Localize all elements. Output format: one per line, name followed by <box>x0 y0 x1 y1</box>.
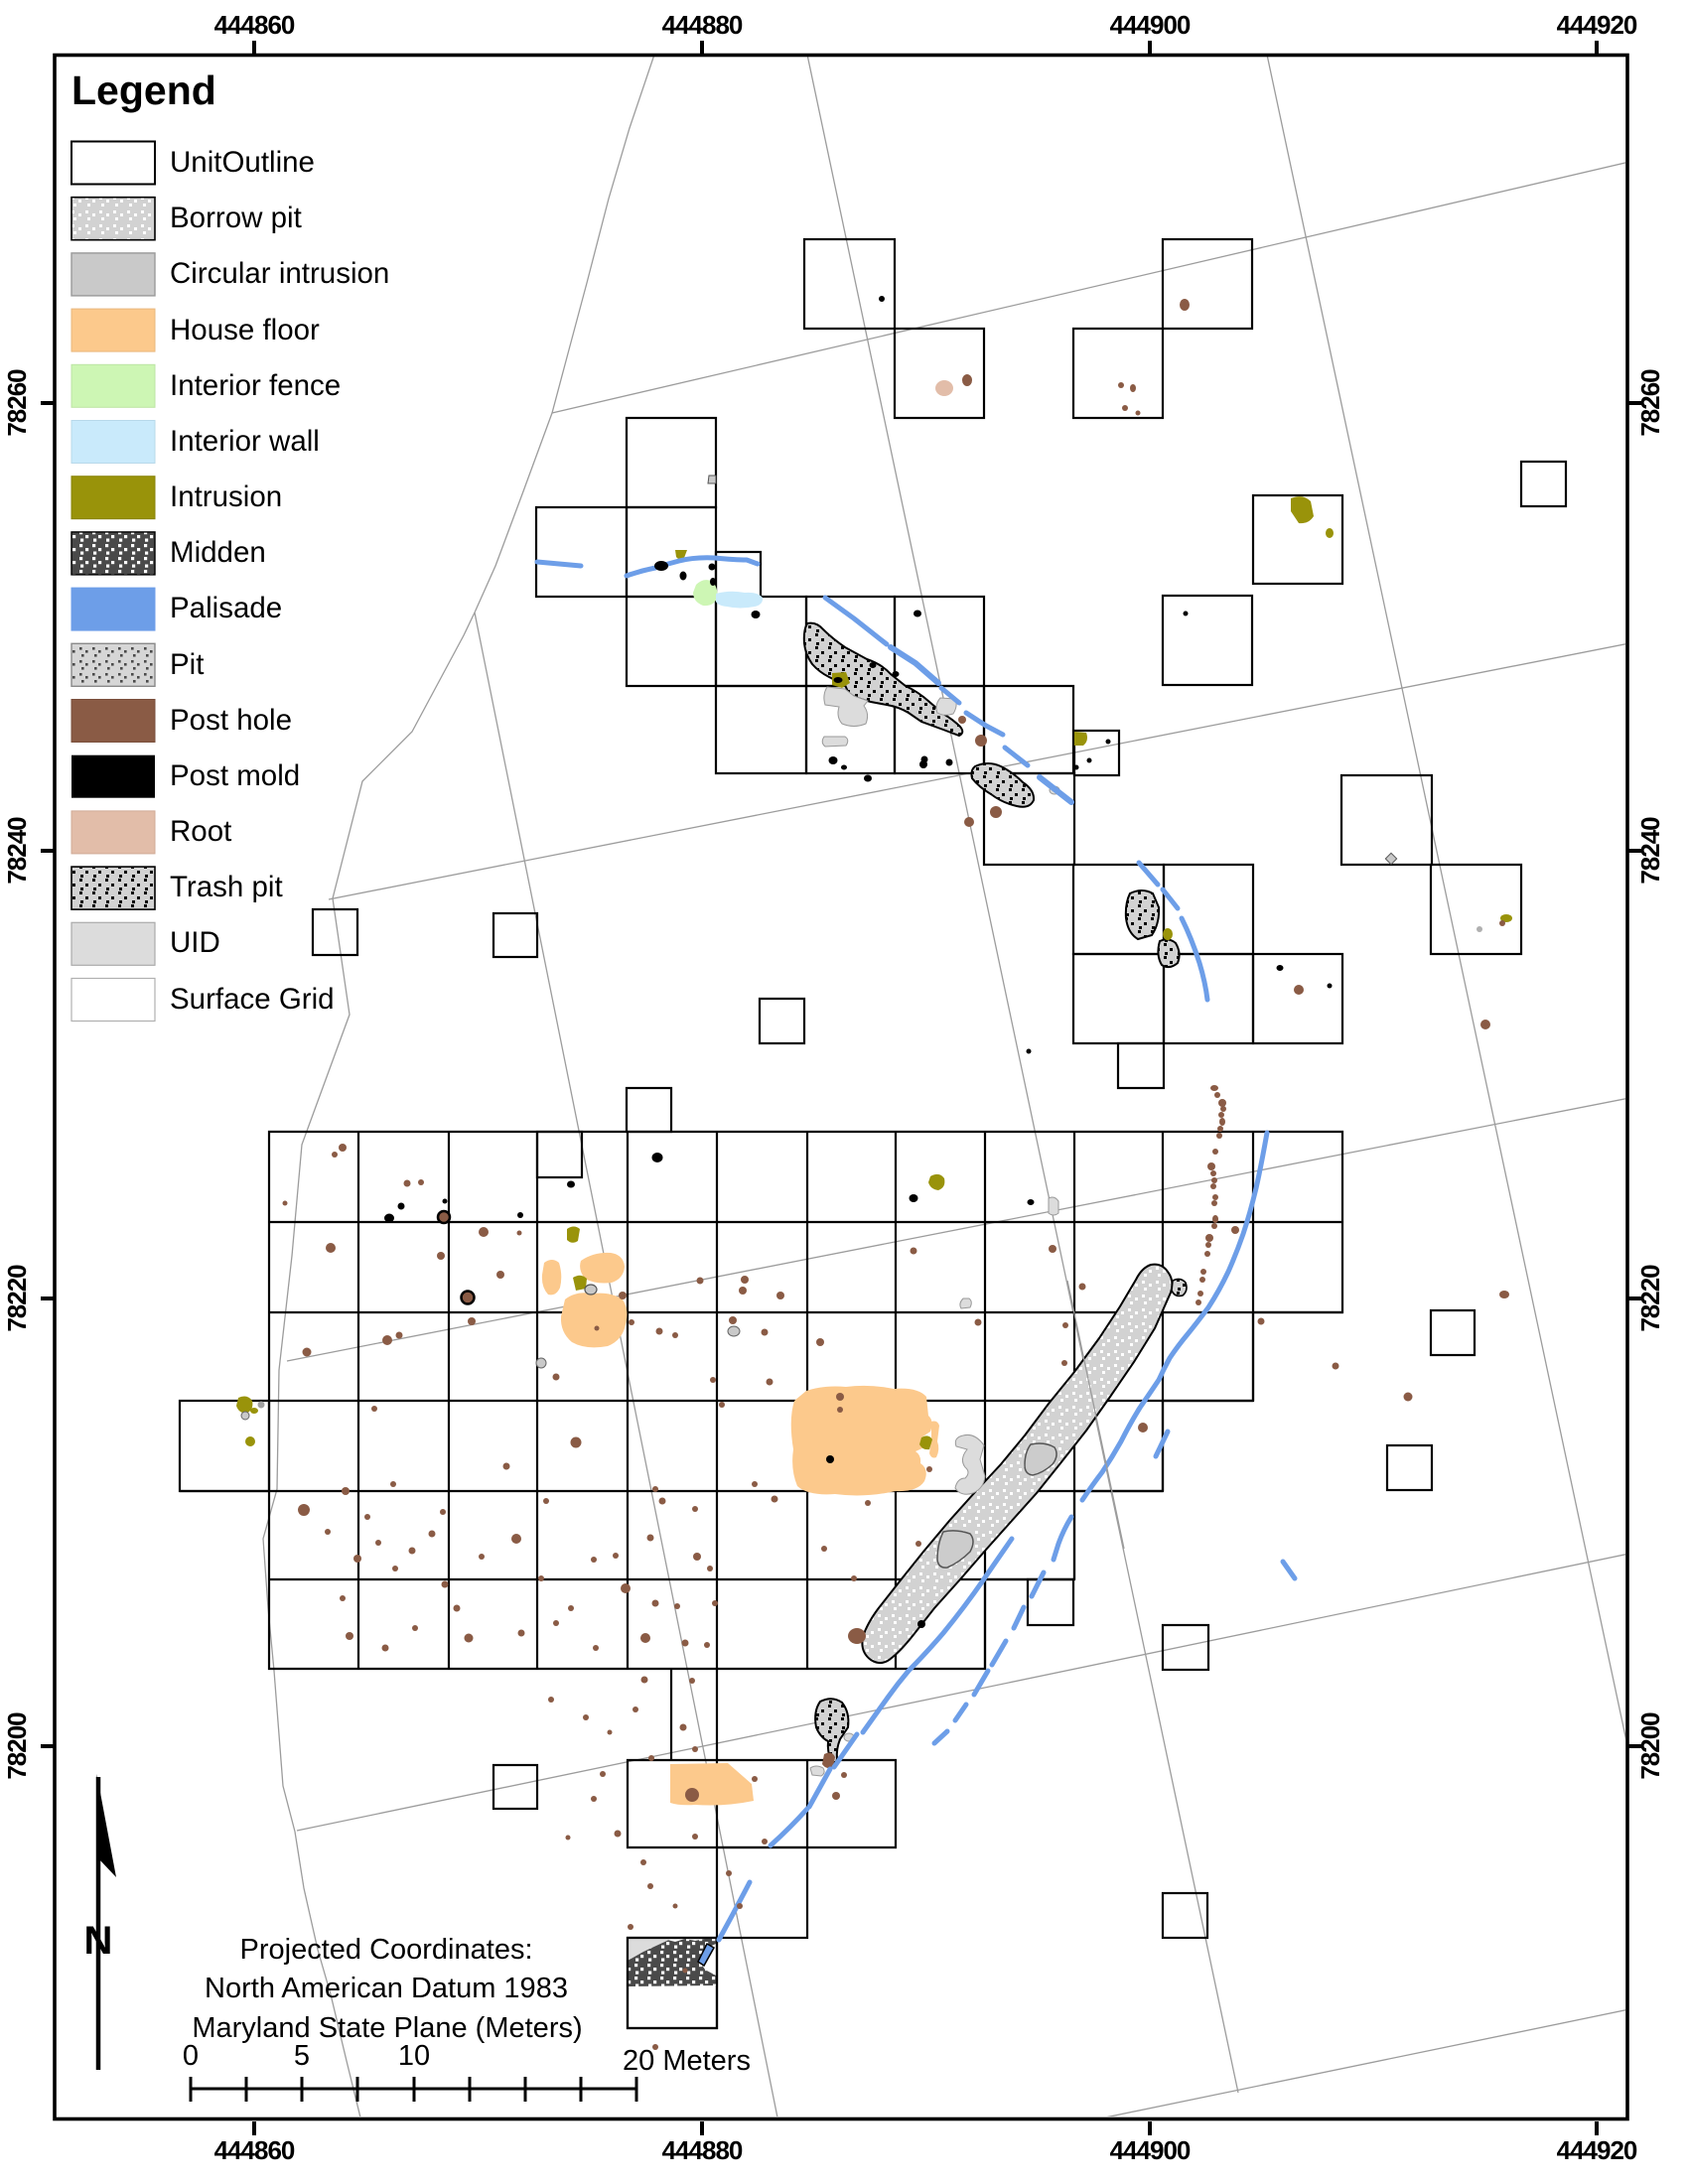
svg-text:Surface Grid: Surface Grid <box>170 983 335 1016</box>
svg-text:Trash pit: Trash pit <box>170 871 283 903</box>
svg-text:North American Datum 1983: North American Datum 1983 <box>205 1973 568 2004</box>
svg-text:444860: 444860 <box>214 10 295 40</box>
svg-text:20 Meters: 20 Meters <box>623 2045 751 2077</box>
svg-text:Post mold: Post mold <box>170 759 300 792</box>
svg-text:444900: 444900 <box>1110 2135 1191 2165</box>
svg-text:UID: UID <box>170 926 220 959</box>
svg-text:78260: 78260 <box>2 369 32 437</box>
svg-text:Interior wall: Interior wall <box>170 425 320 458</box>
svg-text:444900: 444900 <box>1110 10 1191 40</box>
svg-text:444920: 444920 <box>1557 2135 1637 2165</box>
svg-text:444880: 444880 <box>662 10 743 40</box>
svg-text:UnitOutline: UnitOutline <box>170 146 315 179</box>
svg-text:78240: 78240 <box>1635 817 1665 885</box>
svg-text:Projected Coordinates:: Projected Coordinates: <box>240 1934 533 1966</box>
svg-text:78240: 78240 <box>2 817 32 885</box>
svg-text:Borrow pit: Borrow pit <box>170 202 302 234</box>
svg-text:Legend: Legend <box>71 68 216 113</box>
svg-text:N: N <box>84 1919 113 1963</box>
svg-text:78220: 78220 <box>2 1265 32 1332</box>
svg-text:78200: 78200 <box>2 1712 32 1780</box>
svg-text:House floor: House floor <box>170 314 320 346</box>
svg-text:444860: 444860 <box>214 2135 295 2165</box>
svg-text:Palisade: Palisade <box>170 592 282 624</box>
svg-text:Maryland State Plane (Meters): Maryland State Plane (Meters) <box>192 2012 582 2044</box>
svg-text:5: 5 <box>294 2040 310 2072</box>
svg-text:0: 0 <box>183 2040 199 2072</box>
svg-text:Interior fence: Interior fence <box>170 369 341 402</box>
svg-text:444920: 444920 <box>1557 10 1637 40</box>
svg-text:444880: 444880 <box>662 2135 743 2165</box>
svg-text:Circular intrusion: Circular intrusion <box>170 257 389 290</box>
svg-text:Midden: Midden <box>170 536 266 569</box>
svg-text:78200: 78200 <box>1635 1712 1665 1780</box>
svg-text:Post hole: Post hole <box>170 704 292 737</box>
svg-text:10: 10 <box>398 2040 430 2072</box>
svg-text:Root: Root <box>170 815 231 848</box>
svg-text:Pit: Pit <box>170 648 204 681</box>
svg-text:78220: 78220 <box>1635 1265 1665 1332</box>
svg-text:Intrusion: Intrusion <box>170 480 282 513</box>
svg-text:78260: 78260 <box>1635 369 1665 437</box>
